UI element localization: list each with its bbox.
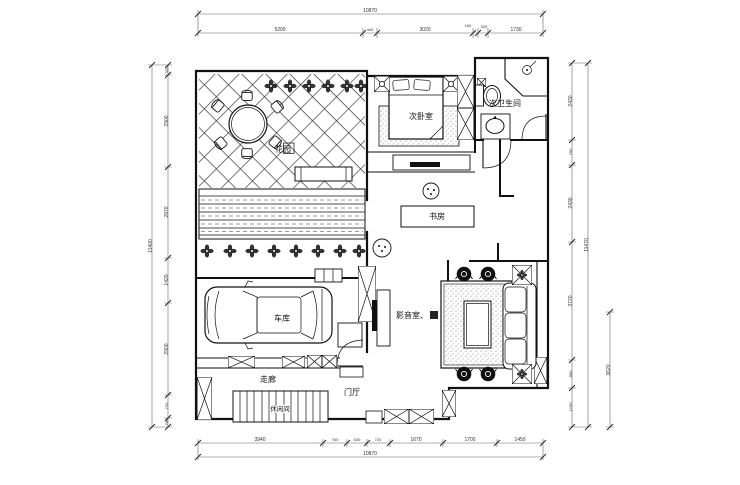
- dim-top-seg: 160: [465, 23, 472, 28]
- deck-strip: [199, 189, 365, 239]
- dim-left-overall: 11400: [148, 239, 154, 253]
- plant-icon: [373, 239, 391, 257]
- dim-bottom-seg: 630: [354, 437, 361, 442]
- flower-icon: [246, 245, 258, 257]
- window-icon: [384, 409, 409, 424]
- threshold: [340, 367, 363, 377]
- sink-icon: [481, 114, 510, 139]
- shower-wall: [505, 58, 548, 96]
- window-icon: [228, 356, 255, 368]
- bathroom-door: [483, 140, 511, 168]
- flower-icon: [312, 245, 324, 257]
- window-icon: [442, 390, 456, 417]
- study-label: 书房: [429, 211, 445, 221]
- dim-top-seg: 320: [481, 24, 488, 29]
- dim-left-seg: 280: [164, 418, 169, 425]
- flower-icon: [290, 245, 302, 257]
- garage: 车库: [205, 269, 342, 349]
- dim-right-seg: 1230: [568, 402, 573, 412]
- dim-right-seg: 790: [568, 148, 573, 155]
- garage-door: [337, 323, 363, 377]
- dim-bottom-seg: 1700: [464, 437, 475, 443]
- tv-screen: [372, 300, 377, 331]
- car: [205, 281, 332, 349]
- shower-icon: [523, 61, 537, 75]
- dim-left-seg: 2900: [164, 115, 170, 126]
- corridor-label: 走廊: [260, 374, 276, 384]
- dim-bottom-overall: 10870: [363, 451, 377, 457]
- dim-right-seg: 880: [568, 370, 573, 377]
- bathroom-label: 次卫生间: [489, 98, 521, 108]
- dim-right-overall: 11470: [584, 238, 590, 252]
- tv-wall: [358, 266, 390, 346]
- media-room: 影音室、: [396, 265, 536, 384]
- shoe-cabinet: [315, 269, 342, 282]
- study: 书房: [373, 183, 474, 257]
- sofa: [503, 283, 536, 369]
- garden-label: 花园: [275, 144, 291, 154]
- dim-left-seg: 720: [164, 402, 169, 409]
- window-icon: [197, 377, 212, 420]
- dim-right-seg: 3720: [568, 295, 574, 306]
- dim-left-seg: 2870: [164, 206, 170, 217]
- dim-top-seg: 3020: [419, 27, 430, 33]
- speaker-icon: [480, 267, 497, 282]
- flower-row-bottom: [201, 245, 365, 257]
- bed: [389, 77, 443, 139]
- lamp-dot: [379, 81, 384, 86]
- column-flower-icon: [512, 364, 532, 384]
- coffee-table: [464, 301, 491, 348]
- window-icon: [307, 355, 322, 368]
- dim-right-seg: 2430: [568, 197, 574, 208]
- door-landing: [338, 323, 362, 347]
- dim-bottom-seg: 3940: [254, 437, 265, 443]
- speaker-icon: [456, 267, 473, 282]
- dim-bottom-seg: 1450: [514, 437, 525, 443]
- dim-top-overall: 10870: [363, 8, 377, 14]
- speaker-icon: [456, 367, 473, 382]
- hall-door: [522, 114, 546, 140]
- wardrobe-icon: [457, 75, 474, 108]
- lamp-dot: [448, 81, 453, 86]
- dim-top-seg: 5200: [274, 27, 285, 33]
- window-icon: [322, 355, 337, 368]
- wardrobe-icon: [457, 108, 474, 140]
- garden-table: [229, 105, 267, 143]
- flower-icon: [224, 245, 236, 257]
- flower-icon: [268, 245, 280, 257]
- dim-top-seg: 440: [367, 27, 374, 32]
- label-overlap-glyph: [430, 311, 438, 319]
- dim-right-seg: 2430: [568, 95, 574, 106]
- garden-bench: [295, 167, 352, 181]
- flower-icon: [353, 245, 365, 257]
- tv-cabinet: [377, 290, 390, 346]
- bathroom: 次卫生间: [476, 61, 547, 168]
- dim-left-seg: 2900: [164, 343, 170, 354]
- flower-icon: [334, 245, 346, 257]
- dim-bottom-seg: 720: [375, 437, 382, 442]
- wall-nib: [366, 411, 382, 423]
- foyer-label: 门厅: [344, 387, 360, 397]
- floor-plan-canvas: 10870 5200 440 3020 160 320 1730 3940 76…: [0, 0, 740, 480]
- stair-room-label: 休闲间: [270, 404, 290, 413]
- dim-bottom-seg: 760: [332, 437, 339, 442]
- stairs: 休闲间: [233, 391, 328, 422]
- plant-icon: [423, 183, 439, 199]
- dim-bottom-seg: 1670: [410, 437, 421, 443]
- window-icon: [282, 356, 305, 368]
- dim-left-seg: 320: [164, 66, 169, 73]
- bedroom-cabinet: [393, 155, 470, 170]
- column-flower-icon: [512, 265, 532, 285]
- speaker-icon: [480, 367, 497, 382]
- garden-room: 花园: [199, 74, 367, 188]
- flower-icon: [201, 245, 213, 257]
- dim-right-aux: 3620: [606, 364, 612, 375]
- media-room-label: 影音室、: [396, 310, 428, 320]
- bedroom: 次卧室: [374, 75, 486, 170]
- dim-left-seg: 1420: [164, 274, 170, 285]
- dim-top-seg: 1730: [510, 27, 521, 33]
- garage-label: 车库: [274, 313, 290, 323]
- window-icon: [409, 409, 434, 424]
- corridor-windows: [228, 355, 337, 368]
- bedroom-label: 次卧室: [409, 111, 433, 121]
